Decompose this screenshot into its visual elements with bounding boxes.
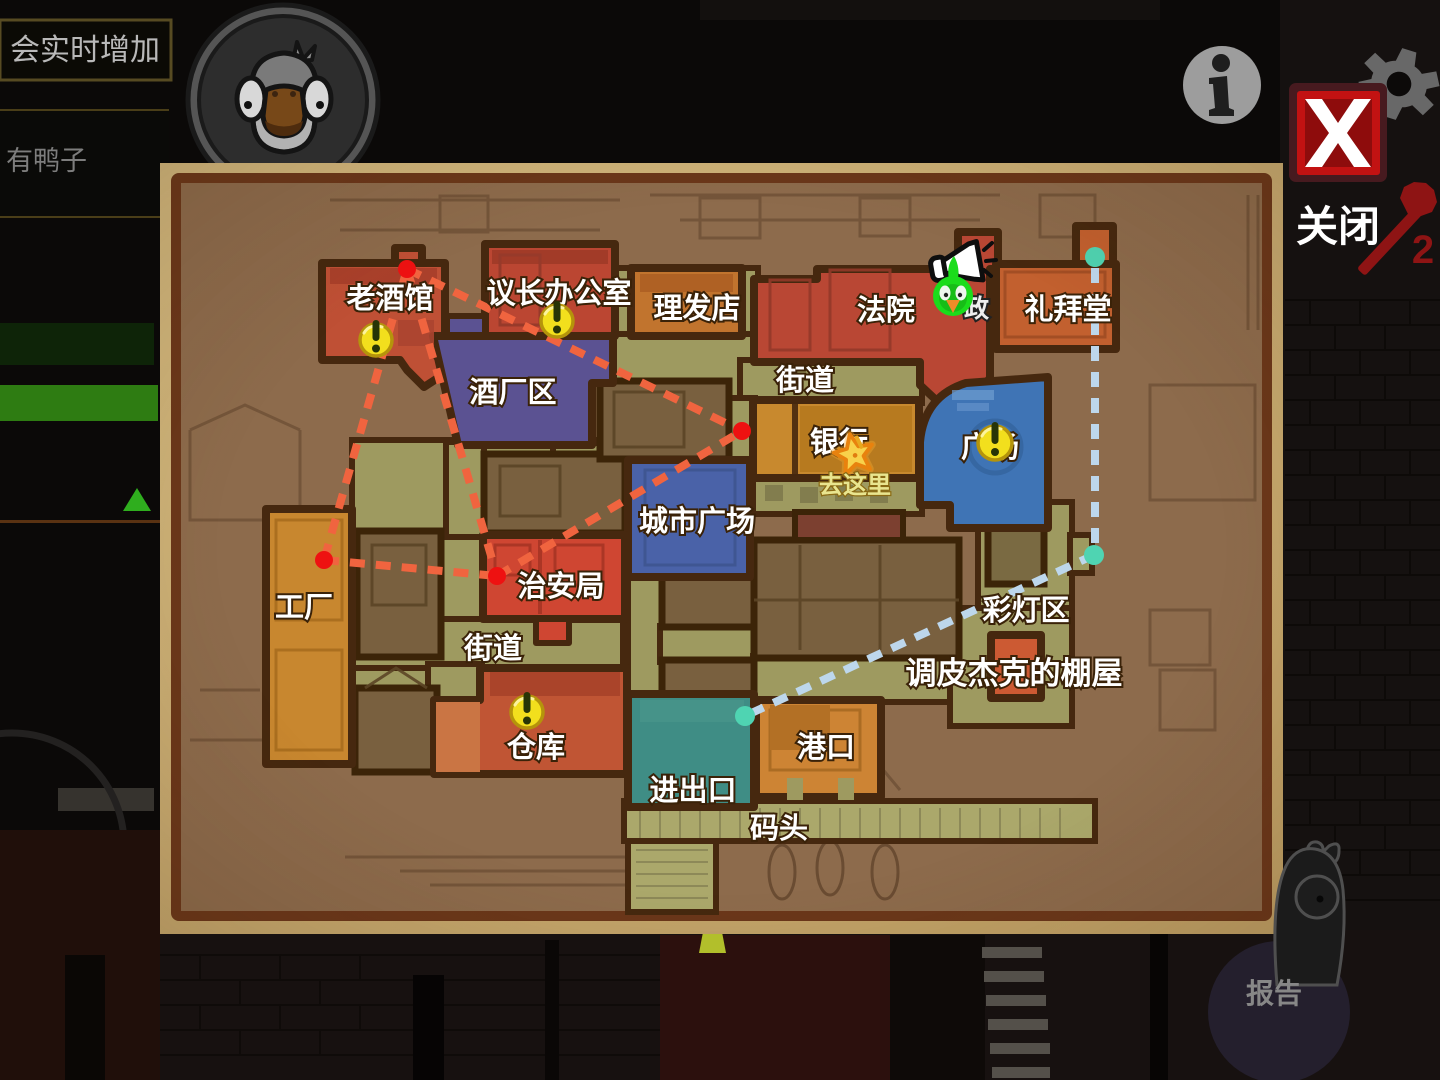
- svg-text:报告: 报告: [1246, 978, 1302, 1009]
- svg-text:关闭: 关闭: [1296, 203, 1380, 250]
- svg-text:2: 2: [1412, 228, 1434, 272]
- svg-text:会实时增加: 会实时增加: [10, 34, 160, 67]
- svg-text:有鸭子: 有鸭子: [6, 146, 87, 176]
